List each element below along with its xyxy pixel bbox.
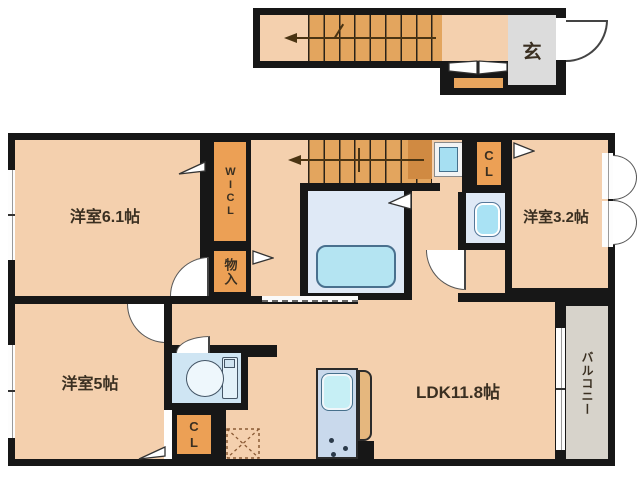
stove-burner-dot-1: [329, 438, 334, 443]
closet-lower: CL: [172, 410, 216, 459]
stove-burner-dot-3: [331, 452, 336, 457]
entrance-step: [452, 76, 505, 90]
entrance-door-arc: [566, 20, 608, 62]
ldk-room: LDK11.8帖: [378, 377, 538, 403]
storage-closet: 物入: [209, 246, 251, 297]
west-room-3-2: 洋室3.2帖: [512, 205, 600, 227]
toilet-cover-box: [224, 359, 235, 368]
entrance-area: 玄: [508, 15, 556, 85]
washbasin-sink: [475, 203, 500, 236]
stove-burner-dot-2: [343, 446, 348, 451]
wicl-label: WICL: [225, 166, 236, 218]
wall-washer-right: [462, 137, 472, 192]
window-room-5: [8, 345, 15, 438]
closet-lower-label: CL: [188, 419, 201, 451]
washbasin-left-wall: [458, 192, 466, 250]
balcony-sliding-window: [556, 328, 565, 450]
upper-stairs-arrow-head-icon: [284, 33, 297, 43]
toilet-right-wall: [241, 345, 248, 410]
wall-below-closet-upper: [462, 185, 510, 193]
entrance-label: 玄: [522, 37, 541, 64]
door-swing-indicator-bath: [388, 192, 412, 212]
window-room-3-2-lower: [602, 201, 613, 247]
wall-kitchen-bottom: [358, 441, 374, 459]
kitchen-sink: [322, 374, 352, 410]
wall-washbasin-ldk: [458, 293, 505, 302]
kitchen-counter-edge: [358, 370, 372, 441]
bathtub: [316, 245, 396, 288]
door-swing-indicator-room-3-2: [513, 142, 535, 160]
closet-upper-label: CL: [483, 148, 496, 180]
casement-arc-lower: [613, 200, 637, 245]
window-room-6-1: [8, 170, 15, 260]
wall-room-3-2-bottom: [505, 288, 615, 302]
storage-label: 物入: [224, 258, 237, 286]
door-swing-indicator-closet-lower: [138, 446, 166, 462]
main-stairs-arrow-tick: [358, 148, 360, 172]
casement-arc-upper: [613, 155, 637, 200]
door-swing-indicator-wicl: [178, 160, 206, 186]
toilet-bowl: [186, 360, 224, 397]
wall-west-room-3-2-left: [505, 137, 512, 300]
toilet-bottom-wall: [164, 403, 248, 410]
door-swing-indicator-storage: [252, 250, 274, 266]
upper-stairs-arrow-line: [296, 37, 436, 39]
floor-plan-canvas: 玄 バルコニー 洋室6.1帖 WICL 物入: [0, 0, 640, 480]
window-room-3-2-upper: [602, 153, 613, 199]
hall-ldk-threshold: [262, 296, 358, 302]
double-door-icon: [448, 60, 508, 76]
main-stairs-arrow-head-icon: [288, 155, 301, 165]
washer-pan-inner: [439, 147, 458, 172]
entrance-door-gap: [556, 18, 566, 60]
balcony-label: バルコニー: [575, 318, 599, 448]
closet-upper: CL: [472, 137, 506, 190]
washbasin-bottom-wall: [458, 243, 505, 250]
west-room-5: 洋室5帖: [20, 370, 160, 394]
refrigerator-space-icon: [226, 428, 260, 459]
west-room-6-1: 洋室6.1帖: [25, 203, 185, 227]
wall-closet-lower-right: [216, 410, 226, 459]
main-stairs-arrow-line: [298, 159, 424, 161]
walk-in-closet: WICL: [209, 137, 251, 246]
